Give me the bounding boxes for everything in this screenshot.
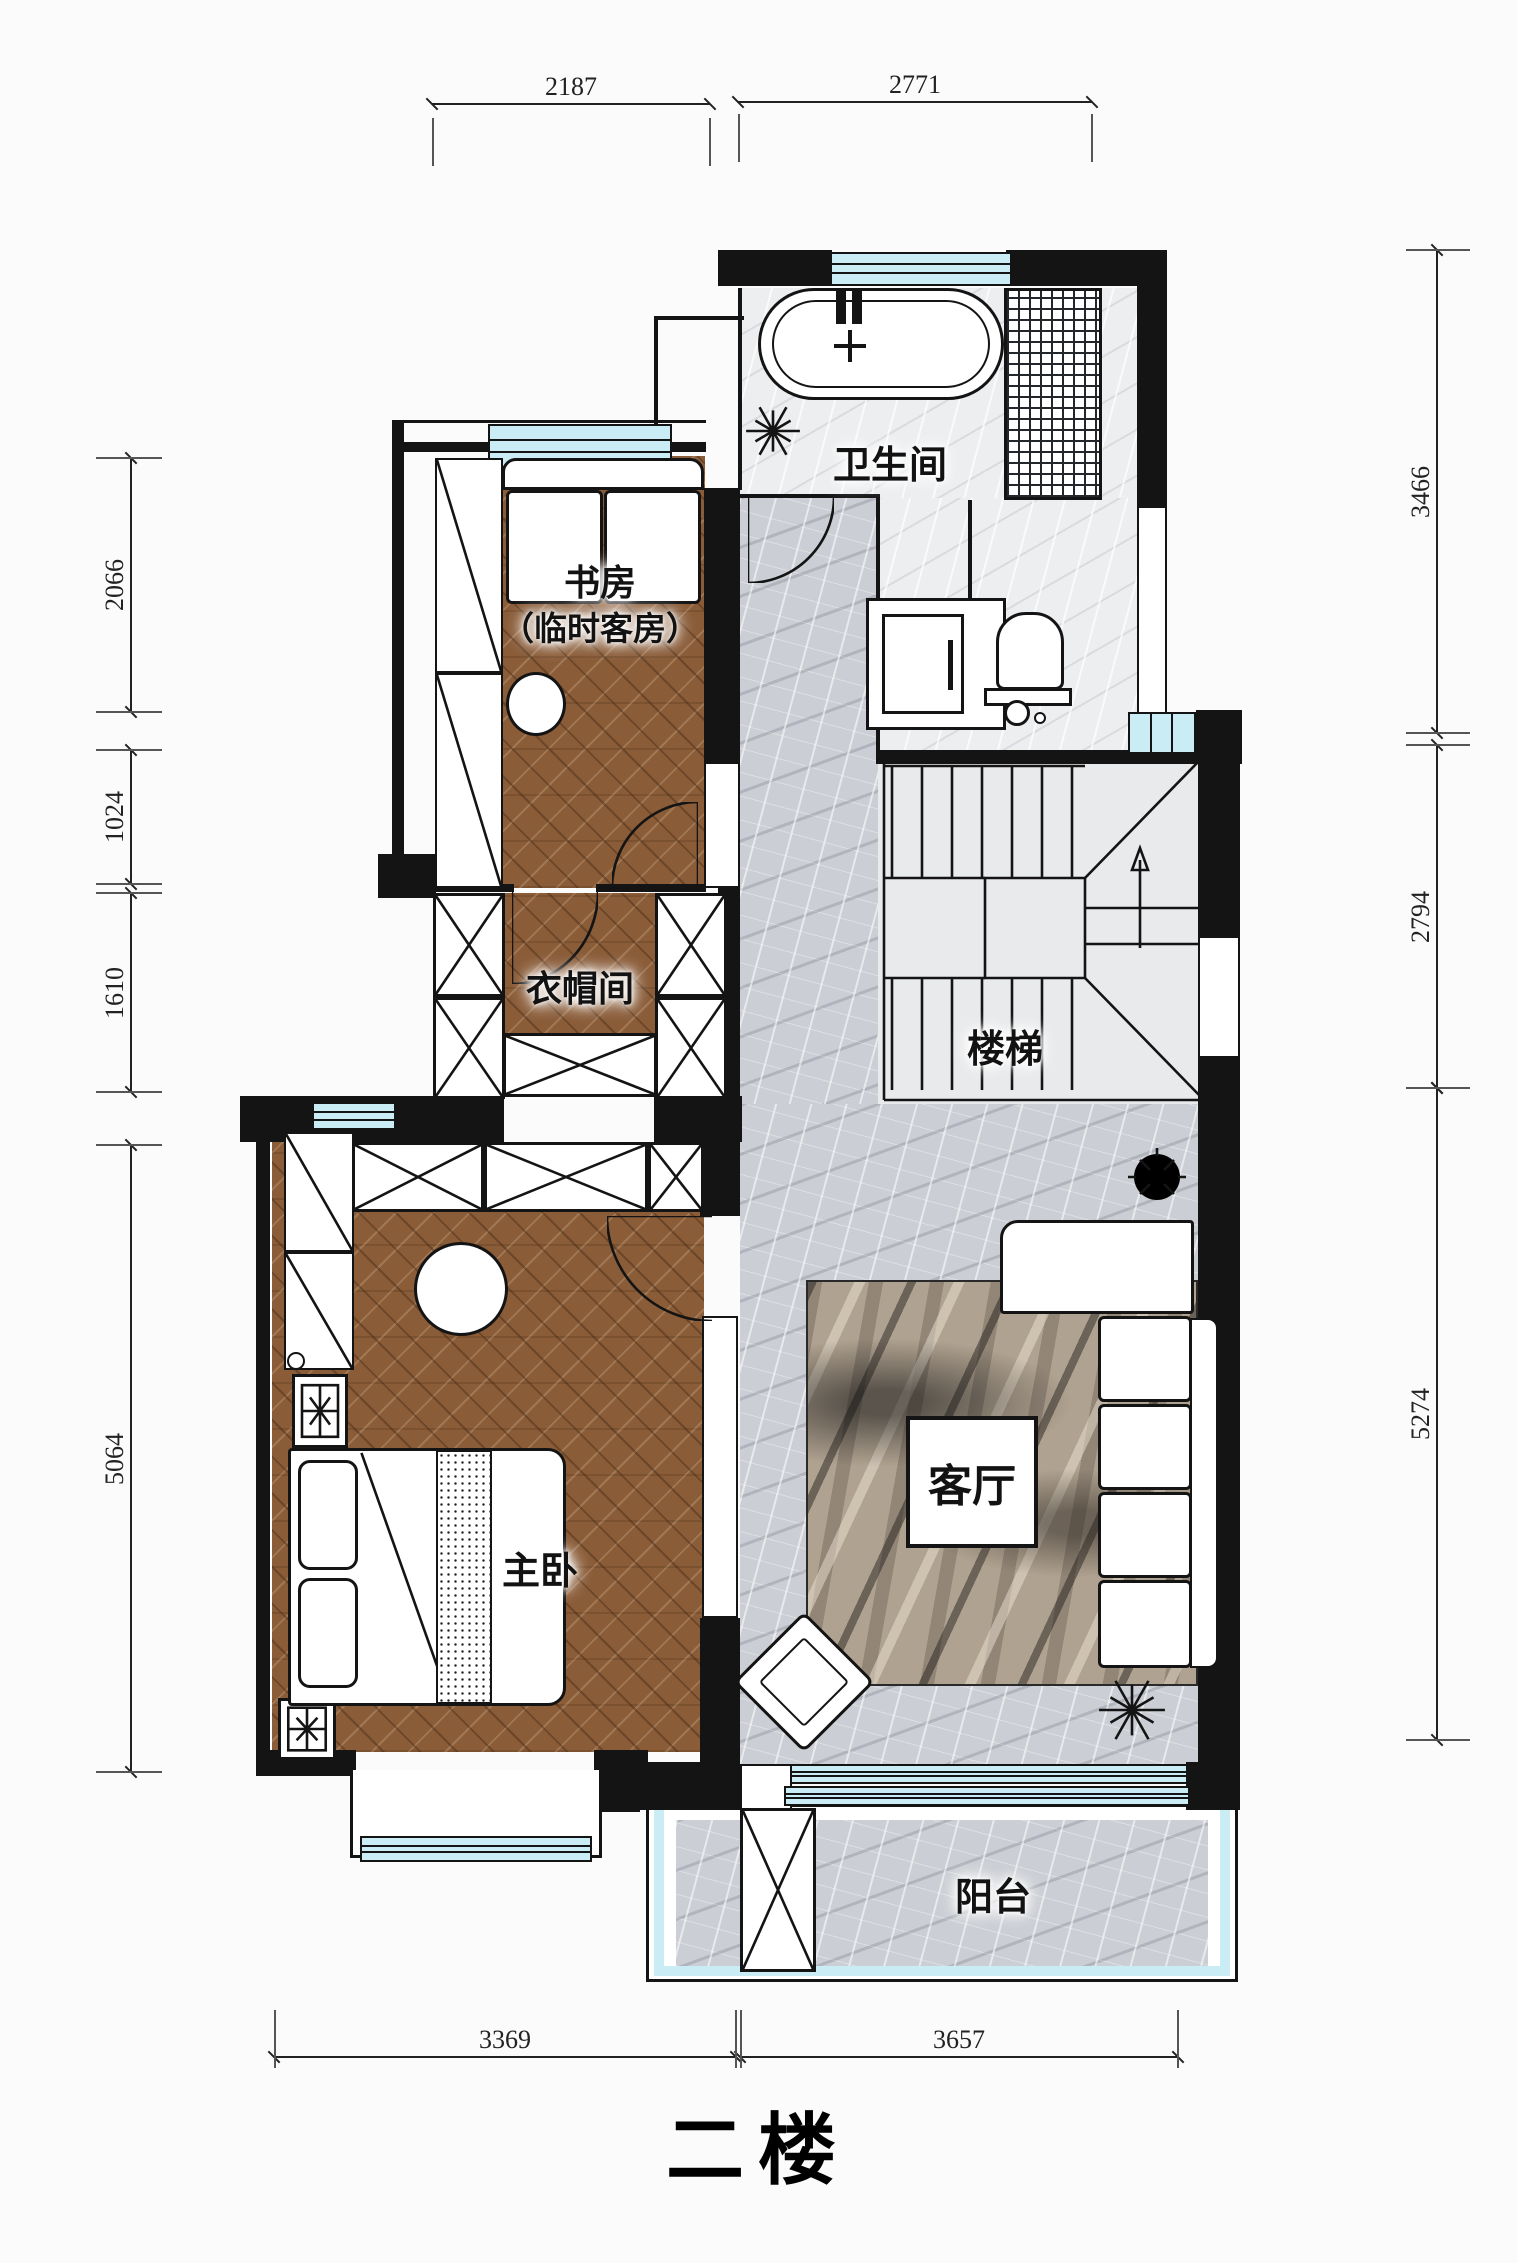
balcony-slider-window-1 [790, 1764, 1188, 1784]
extension-line [1406, 1739, 1470, 1741]
study-chair [506, 672, 566, 736]
wardrobe-unit [655, 893, 727, 997]
bathroom-door [748, 497, 834, 583]
plant-icon [1094, 1672, 1170, 1748]
nightstand [292, 1374, 348, 1448]
shower-tray [1004, 288, 1102, 500]
extension-line [1406, 1087, 1470, 1089]
wall-line [392, 442, 490, 452]
cabinet-knob [287, 1352, 305, 1370]
wall-line [392, 420, 706, 423]
wall-line [670, 442, 706, 452]
bathtub-tap-knob [852, 290, 862, 324]
wardrobe-unit [503, 1033, 657, 1097]
room-label-closet: 衣帽间 [495, 960, 665, 1012]
dim-right-3: 5274 [1436, 1088, 1438, 1740]
extension-line [96, 1144, 162, 1146]
sofa-seat [1098, 1492, 1192, 1578]
wall-segment [636, 1762, 740, 1810]
sofa-seat [1098, 1316, 1192, 1402]
wall-cavity [1198, 936, 1240, 1058]
room-label-master: 主卧 [478, 1540, 602, 1595]
room-label-bathroom: 卫生间 [790, 434, 990, 489]
room-label-balcony: 阳台 [928, 1866, 1058, 1921]
dim-left-2: 1024 [130, 750, 132, 884]
wall-segment [654, 1096, 742, 1142]
round-table [414, 1242, 508, 1336]
extension-line [96, 1771, 162, 1773]
floor-plan: 书房 （临时客房） 卫生间 衣帽间 楼梯 主卧 客厅 阳台 二楼 2187 27… [0, 0, 1517, 2263]
compass-icon [1128, 1148, 1186, 1206]
tall-cabinet [284, 1132, 354, 1252]
pillow [298, 1578, 358, 1688]
extension-line [738, 114, 740, 162]
extension-line [740, 2010, 742, 2068]
wall-segment [1137, 250, 1167, 506]
extension-line [432, 118, 434, 166]
extension-line [1406, 744, 1470, 746]
nightstand [278, 1698, 336, 1760]
wardrobe-unit [484, 1142, 648, 1212]
bedroom-window [312, 1102, 396, 1130]
wall-segment [700, 1142, 740, 1216]
wardrobe-unit [655, 997, 727, 1099]
sofa-backrest [1190, 1318, 1218, 1668]
wardrobe-unit [648, 1142, 704, 1212]
wall-segment [1186, 1762, 1240, 1810]
dim-left-4: 5064 [130, 1145, 132, 1772]
sofa-chaise [1000, 1220, 1194, 1314]
wall-line [654, 316, 744, 320]
sofa-seat [1098, 1404, 1192, 1490]
page-title: 二楼 [558, 2088, 958, 2200]
study-shelf [435, 673, 503, 888]
room-label-living: 客厅 [928, 1450, 1016, 1514]
hallway-floor [740, 497, 878, 1106]
bathtub-drain-cross [848, 330, 852, 362]
bathtub-inner [772, 300, 990, 388]
wall-segment [1198, 764, 1240, 936]
dim-bottom-2: 3657 [740, 2056, 1178, 2058]
balcony-slider-window-2 [784, 1786, 1190, 1806]
dim-right-2: 2794 [1436, 745, 1438, 1088]
floor-drain-dot [1034, 712, 1046, 724]
extension-line [96, 711, 162, 713]
extension-line [735, 2010, 737, 2068]
wardrobe-unit [433, 997, 505, 1099]
balcony-side-window [740, 1808, 816, 1972]
bathtub-tap-knob [836, 290, 846, 324]
dim-left-3: 1610 [130, 893, 132, 1092]
dim-top-1: 2187 [432, 103, 710, 105]
extension-line [96, 457, 162, 459]
wall-cavity [702, 1316, 738, 1618]
wall-cavity [704, 762, 740, 888]
study-label-line1: 书房 [460, 560, 740, 606]
extension-line [96, 1091, 162, 1093]
extension-line [1177, 2010, 1179, 2068]
floor-drain [1004, 700, 1030, 726]
bathroom-window [830, 252, 1012, 286]
dim-right-1: 3466 [1436, 250, 1438, 733]
dim-bottom-1: 3369 [274, 2056, 736, 2058]
dim-left-1: 2066 [130, 458, 132, 712]
extension-line [274, 2010, 276, 2068]
wall-cavity [1137, 506, 1167, 714]
extension-line [709, 118, 711, 166]
wardrobe-unit [352, 1142, 484, 1212]
extension-line [1406, 732, 1470, 734]
extension-line [1091, 114, 1093, 162]
toilet [996, 612, 1064, 690]
wall-segment [700, 1618, 740, 1766]
extension-line [96, 892, 162, 894]
wall-segment [256, 1142, 270, 1774]
wall-segment [718, 250, 832, 286]
pillow [298, 1460, 358, 1570]
extension-line [1406, 249, 1470, 251]
extension-line [96, 749, 162, 751]
room-label-study: 书房 （临时客房） [460, 560, 740, 652]
study-sofa-back [502, 458, 704, 490]
bedroom-door [607, 1216, 712, 1321]
washing-machine-handle [948, 640, 953, 690]
study-door [612, 802, 698, 888]
bay-window-glass [360, 1836, 592, 1862]
room-label-stairs: 楼梯 [940, 1018, 1070, 1073]
wall-segment [1006, 250, 1142, 286]
wall-line [392, 420, 404, 890]
sofa-seat [1098, 1580, 1192, 1668]
extension-line [96, 883, 162, 885]
dim-top-2: 2771 [738, 101, 1092, 103]
room-label-living-box: 客厅 [906, 1416, 1038, 1548]
toilet-base [984, 688, 1072, 706]
stair-window [1128, 712, 1196, 754]
study-label-line2: （临时客房） [460, 606, 740, 652]
